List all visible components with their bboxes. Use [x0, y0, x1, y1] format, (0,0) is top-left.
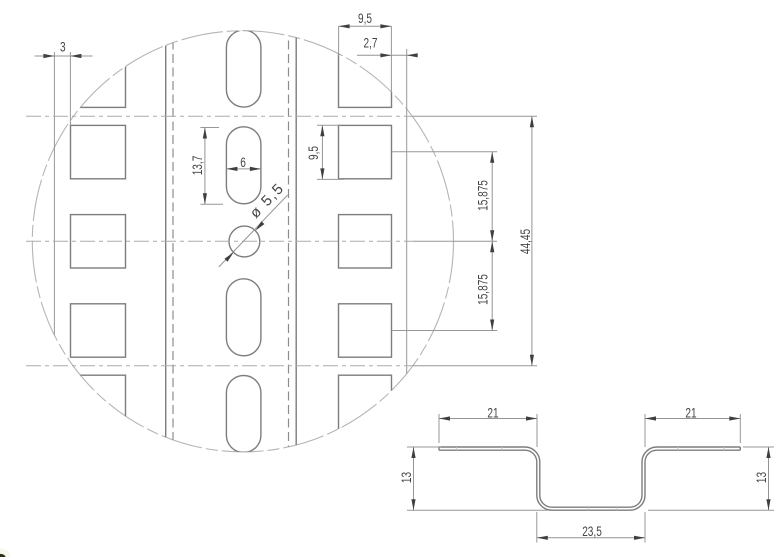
svg-text:6: 6 — [240, 154, 246, 170]
svg-text:13: 13 — [398, 472, 414, 483]
svg-text:9,5: 9,5 — [358, 10, 372, 26]
svg-text:13: 13 — [753, 472, 769, 483]
svg-text:23,5: 23,5 — [582, 523, 602, 539]
svg-text:9,5: 9,5 — [305, 146, 321, 160]
svg-text:15,875: 15,875 — [475, 180, 491, 211]
svg-text:44,45: 44,45 — [517, 229, 533, 254]
svg-text:3: 3 — [60, 39, 66, 55]
svg-text:21: 21 — [685, 405, 696, 421]
svg-text:21: 21 — [487, 405, 498, 421]
svg-text:2,7: 2,7 — [363, 35, 377, 51]
svg-text:15,875: 15,875 — [475, 274, 491, 305]
svg-text:13,7: 13,7 — [189, 156, 205, 176]
